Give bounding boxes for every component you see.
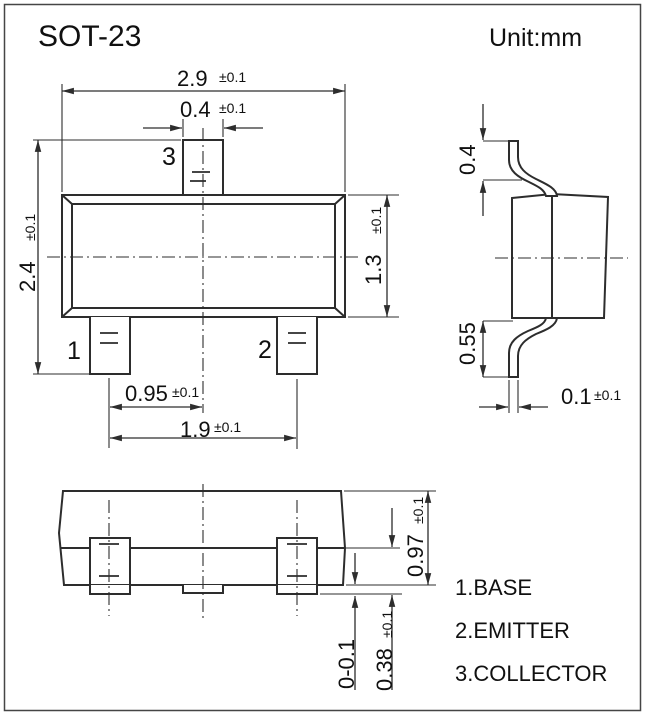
dimension-tolerance: ±0.1 [219, 100, 246, 116]
dimension-tolerance: ±0.1 [214, 419, 241, 435]
dimension-value: 0.4 [180, 97, 211, 122]
legend-item-collector: 3.COLLECTOR [455, 661, 607, 686]
side-body-outline [512, 194, 608, 318]
dimension-tolerance: ±0.1 [410, 497, 426, 524]
dimension-value: 0.1 [561, 384, 592, 409]
dimension-tolerance: ±0.1 [172, 384, 199, 400]
pin2-outline [277, 317, 317, 374]
drawing-sheet: SOT-23 Unit:mm 3 1 2 2.9 ±0.1 0.4 ±0.1 [0, 0, 645, 715]
sot23-package-drawing: SOT-23 Unit:mm 3 1 2 2.9 ±0.1 0.4 ±0.1 [0, 0, 645, 715]
pin1-outline [90, 317, 130, 374]
legend-item-base: 1.BASE [455, 575, 532, 600]
pin1-foot-outline [90, 585, 130, 594]
pin2-label: 2 [258, 336, 272, 364]
dim-lead-thickness: 0.1 ±0.1 [479, 380, 621, 413]
dim-body-height: 1.3 ±0.1 [348, 195, 399, 317]
bottom-view: 0.97 ±0.1 0.38 ±0.1 0-0.1 [59, 484, 436, 691]
dimension-tolerance: ±0.1 [22, 214, 38, 241]
dim-lead-bottom: 0.55 [455, 321, 513, 377]
pin-legend: 1.BASE 2.EMITTER 3.COLLECTOR [455, 575, 607, 686]
pin1-front-outline [90, 538, 130, 585]
legend-item-emitter: 2.EMITTER [455, 618, 570, 643]
bottom-lead-outline [509, 318, 557, 377]
dimension-value: 0.95 [125, 381, 168, 406]
dimension-value: 2.9 [177, 66, 208, 91]
dimension-value: 0-0.1 [334, 639, 359, 689]
dim-side-body-height: 0.97 ±0.1 [344, 491, 436, 585]
dimension-tolerance: ±0.1 [368, 207, 384, 234]
package-title: SOT-23 [38, 20, 141, 53]
dimension-tolerance: ±0.1 [379, 611, 395, 638]
dimension-tolerance: ±0.1 [594, 387, 621, 403]
side-view: 0.4 0.55 0.1 ±0.1 [455, 104, 628, 413]
front-view: 3 1 2 2.9 ±0.1 0.4 ±0.1 2.4 ±0.1 [15, 66, 399, 449]
top-lead-outline [509, 141, 557, 196]
dimension-value: 2.4 [15, 261, 40, 292]
extension-lines [509, 380, 518, 413]
dimension-value: 1.3 [361, 254, 386, 285]
dimension-value: 0.38 [372, 648, 397, 691]
dimension-value: 0.97 [403, 534, 428, 577]
pin3-label: 3 [162, 143, 176, 171]
dimension-value: 0.4 [455, 144, 480, 175]
unit-label: Unit:mm [489, 24, 582, 52]
pin1-label: 1 [67, 337, 81, 365]
dimension-value: 0.55 [455, 322, 480, 365]
dimension-value: 1.9 [180, 417, 211, 442]
dimension-tolerance: ±0.1 [219, 69, 246, 85]
